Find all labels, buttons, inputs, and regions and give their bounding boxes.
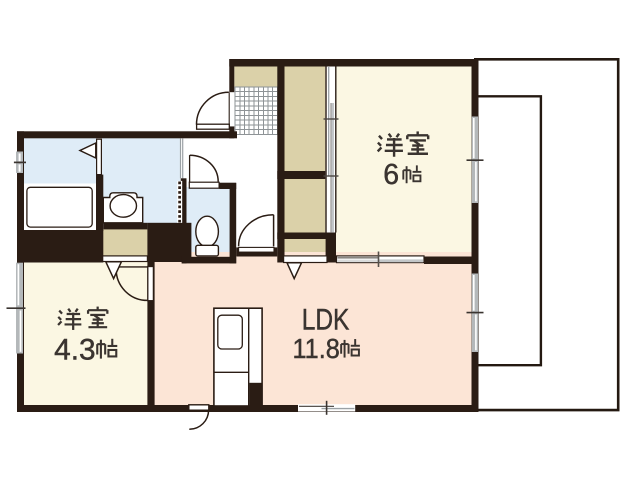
svg-text:6: 6 <box>383 159 399 191</box>
svg-text:4.3: 4.3 <box>54 333 96 366</box>
svg-text:LDK: LDK <box>302 304 350 337</box>
svg-text:11.8: 11.8 <box>293 333 340 364</box>
